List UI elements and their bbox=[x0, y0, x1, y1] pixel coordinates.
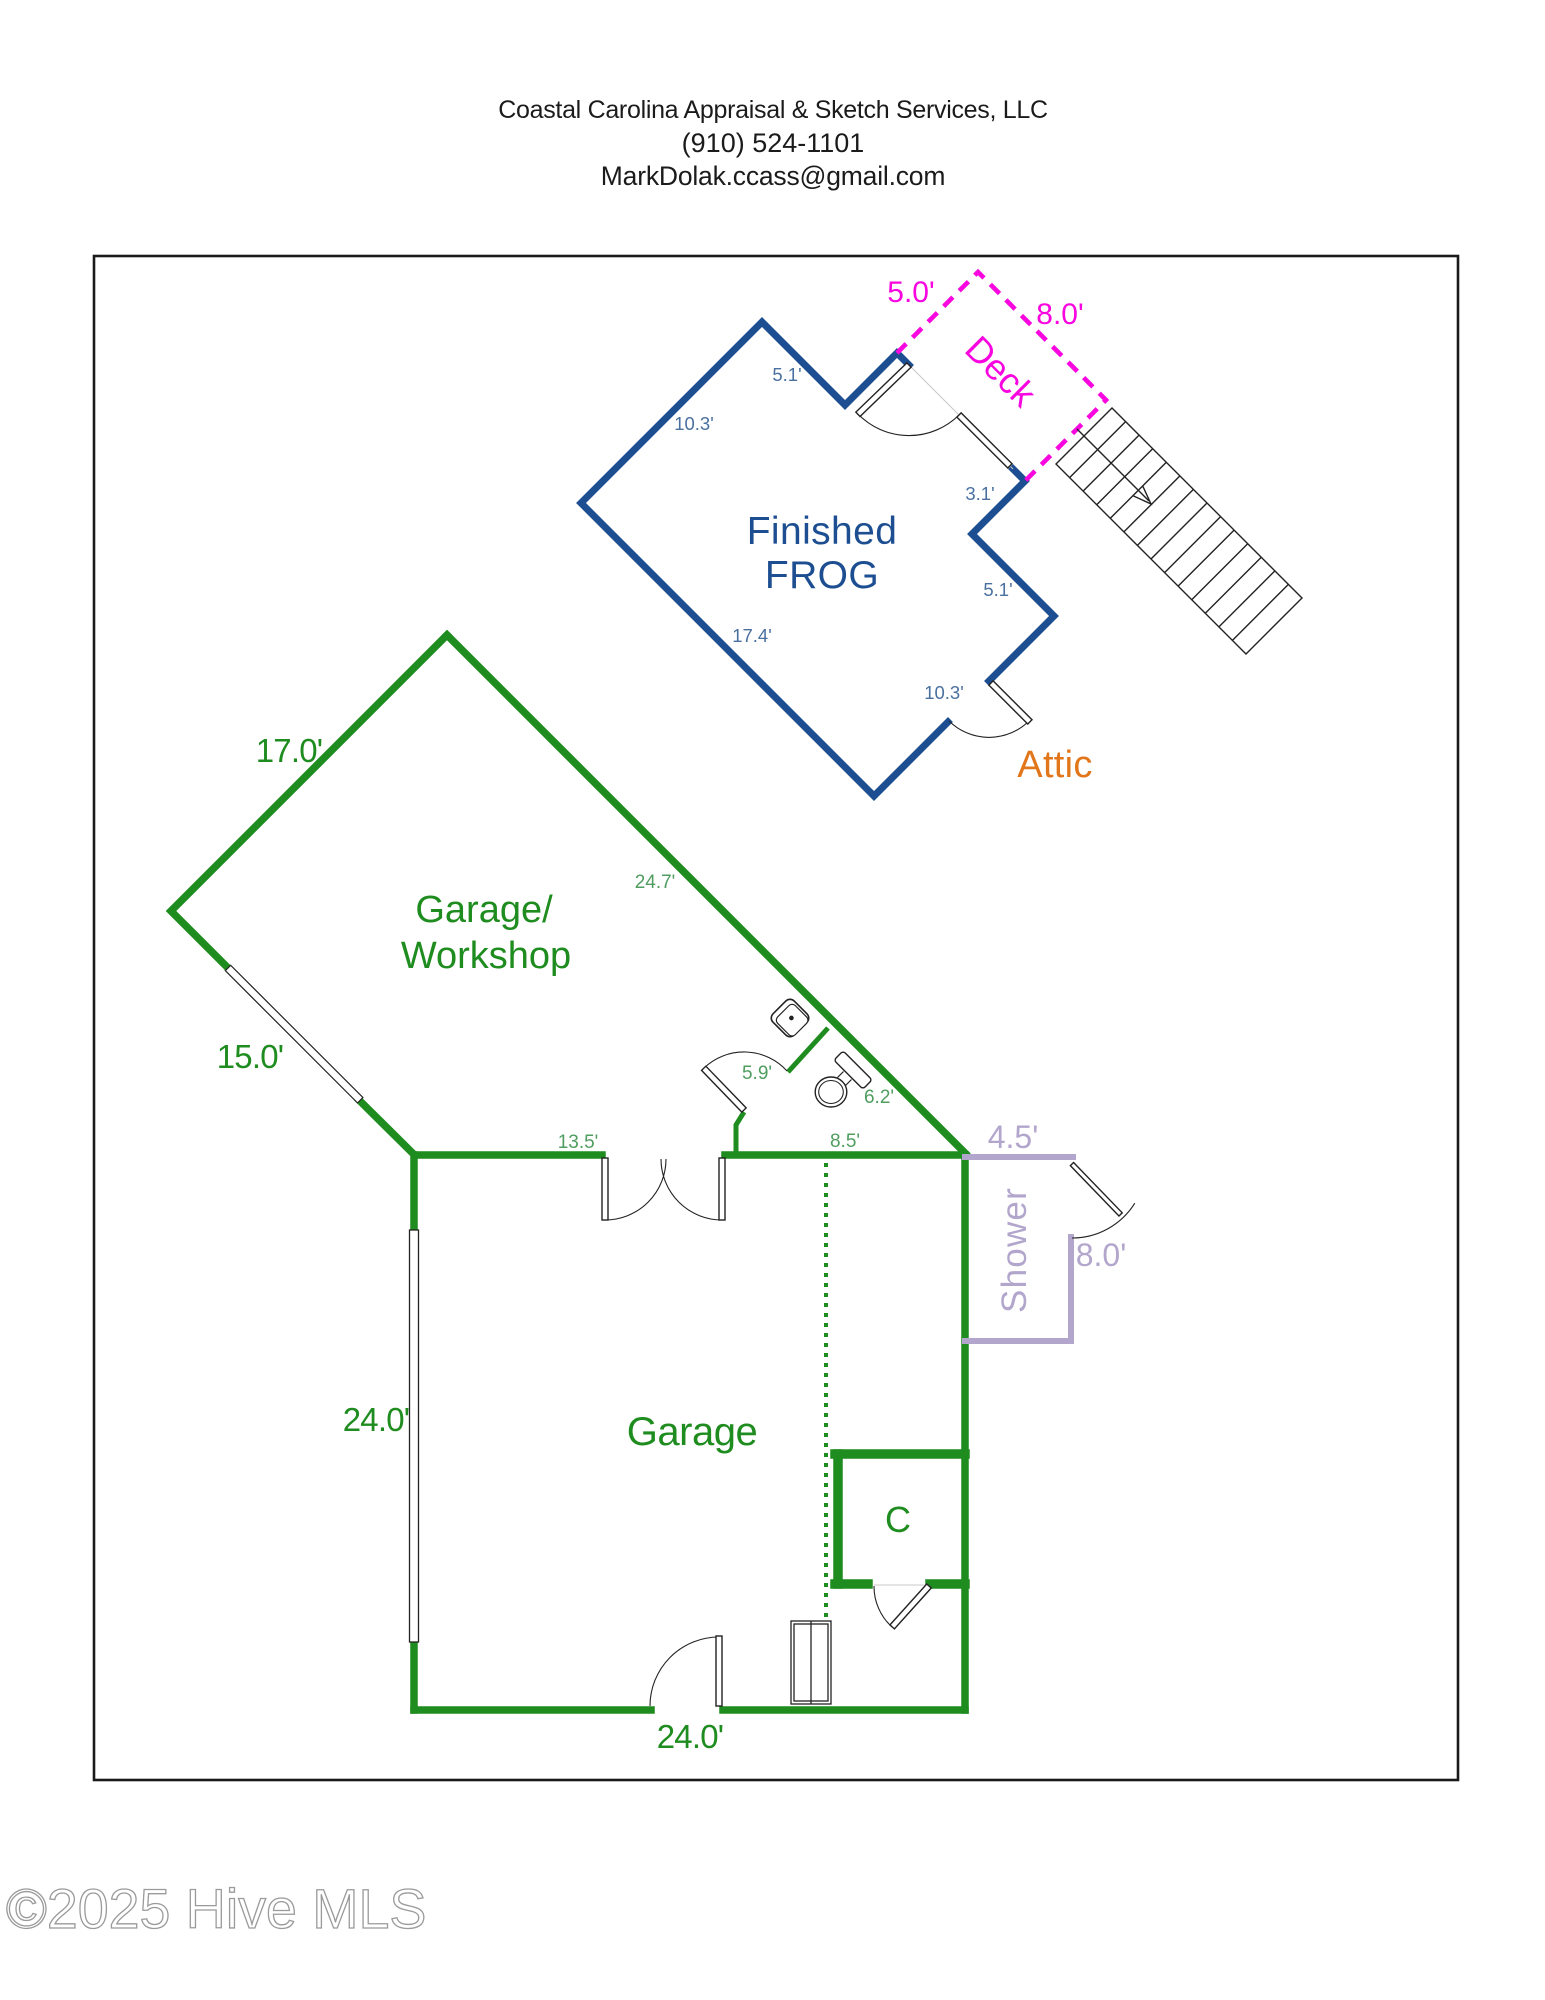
svg-text:(910) 524-1101: (910) 524-1101 bbox=[682, 128, 865, 158]
svg-text:17.0': 17.0' bbox=[256, 732, 323, 769]
svg-text:MarkDolak.ccass@gmail.com: MarkDolak.ccass@gmail.com bbox=[601, 161, 945, 191]
svg-text:Shower: Shower bbox=[995, 1187, 1034, 1313]
svg-text:24.7': 24.7' bbox=[635, 872, 676, 893]
svg-text:Workshop: Workshop bbox=[401, 935, 571, 977]
svg-text:Coastal Carolina Appraisal & S: Coastal Carolina Appraisal & Sketch Serv… bbox=[498, 96, 1048, 124]
svg-text:8.0': 8.0' bbox=[1036, 298, 1083, 331]
svg-text:Finished: Finished bbox=[747, 510, 898, 553]
svg-text:C: C bbox=[885, 1499, 911, 1540]
svg-text:8.5': 8.5' bbox=[830, 1131, 860, 1152]
svg-text:FROG: FROG bbox=[765, 554, 879, 597]
svg-text:5.0': 5.0' bbox=[887, 276, 934, 309]
svg-text:4.5': 4.5' bbox=[988, 1119, 1039, 1155]
svg-text:15.0': 15.0' bbox=[217, 1038, 284, 1075]
svg-text:24.0': 24.0' bbox=[657, 1718, 724, 1755]
svg-text:5.9': 5.9' bbox=[742, 1063, 772, 1084]
svg-text:24.0': 24.0' bbox=[343, 1401, 410, 1438]
svg-text:5.1': 5.1' bbox=[983, 579, 1012, 600]
svg-text:5.1': 5.1' bbox=[772, 364, 801, 385]
svg-text:17.4': 17.4' bbox=[732, 625, 772, 646]
svg-text:3.1': 3.1' bbox=[965, 483, 994, 504]
svg-text:Attic: Attic bbox=[1017, 744, 1092, 786]
svg-text:13.5': 13.5' bbox=[558, 1132, 599, 1153]
svg-text:Garage: Garage bbox=[627, 1410, 757, 1454]
svg-text:©2025 Hive MLS: ©2025 Hive MLS bbox=[6, 1878, 426, 1940]
svg-text:6.2': 6.2' bbox=[864, 1087, 894, 1108]
svg-text:Garage/: Garage/ bbox=[415, 889, 553, 931]
svg-text:8.0': 8.0' bbox=[1076, 1237, 1127, 1273]
svg-text:10.3': 10.3' bbox=[924, 682, 964, 703]
svg-text:10.3': 10.3' bbox=[674, 413, 714, 434]
